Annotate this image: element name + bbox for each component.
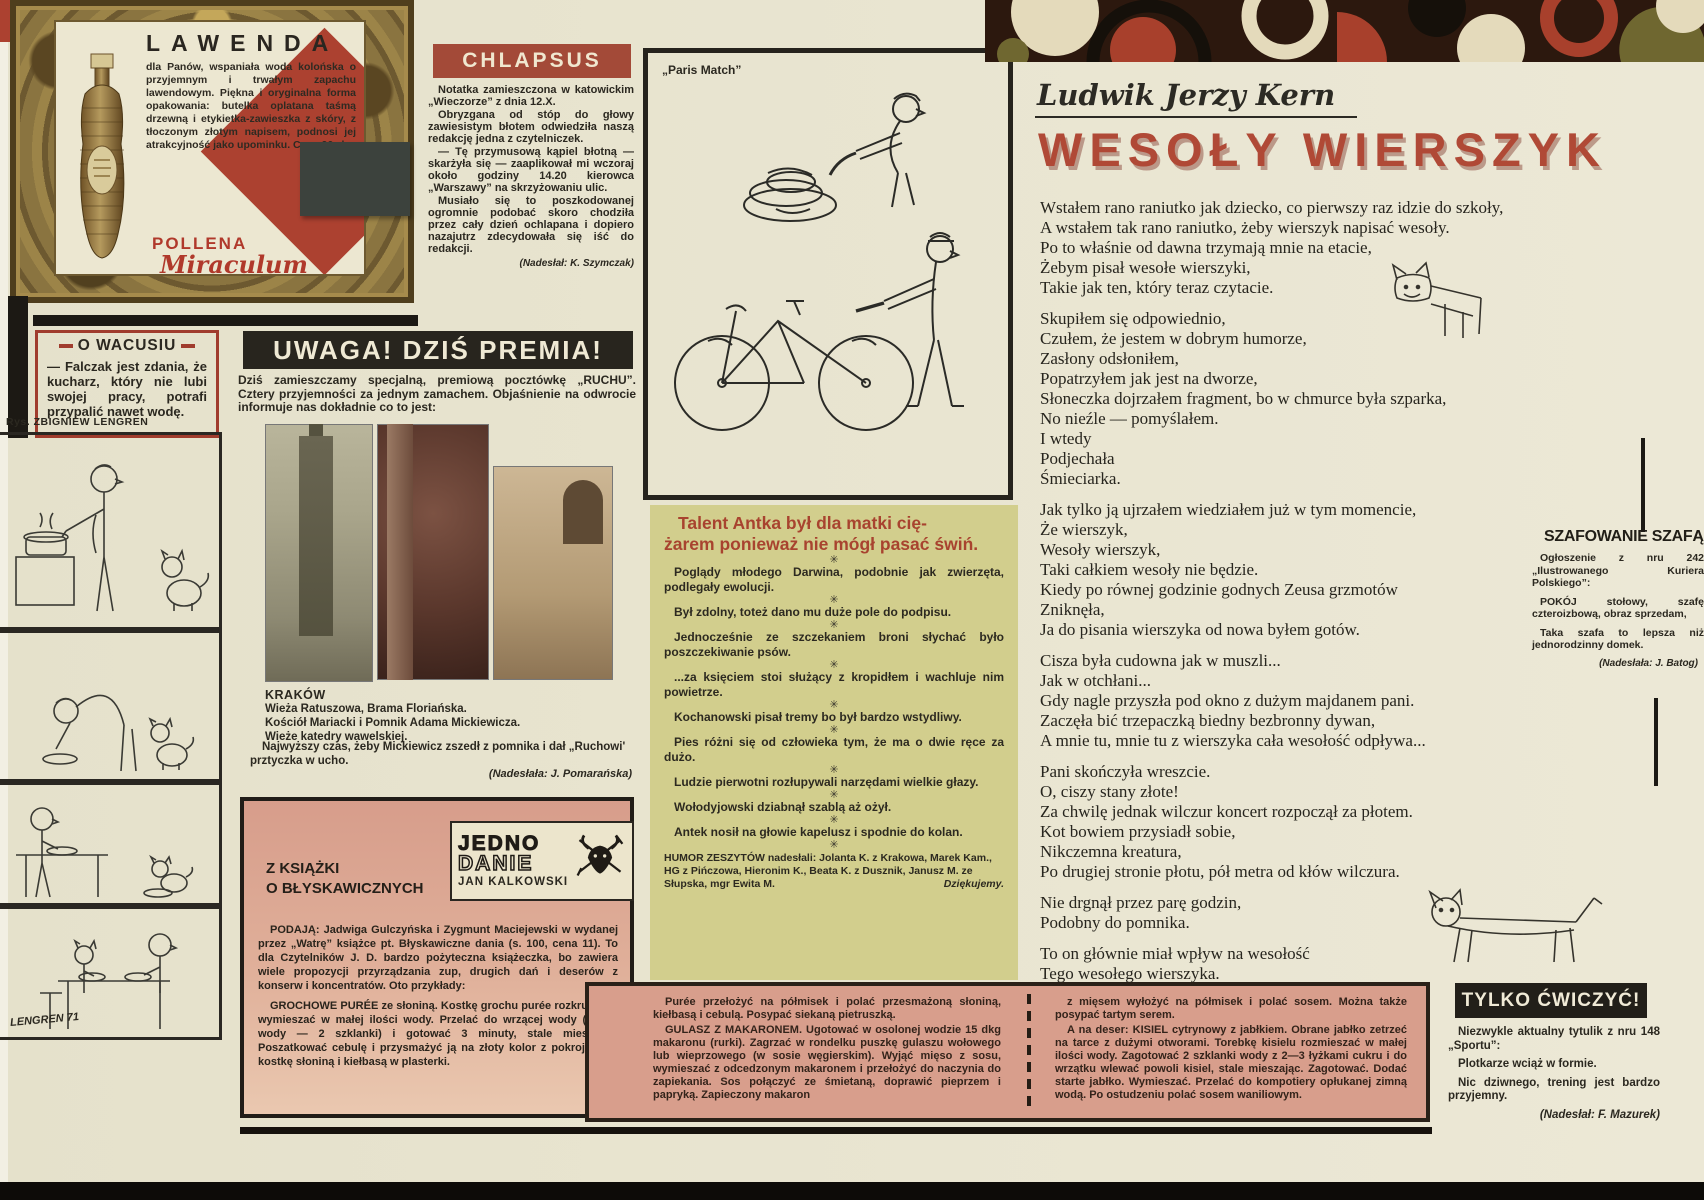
jedno-danie-box: JEDNO DANIE JAN KALKOWSKI Z KSIĄŻKI O BŁ… <box>240 797 634 1118</box>
tylko-credit: (Nadesłał: F. Mazurek) <box>1448 1109 1660 1123</box>
szafowanie-title: SZAFOWANIE SZAFĄ <box>1544 528 1704 546</box>
scan-bottom-bar <box>0 1182 1704 1200</box>
recipe-paragraph: Purée przełożyć na półmisek i polać prze… <box>653 996 1001 1022</box>
star-separator-icon: ✳ <box>664 765 1004 775</box>
tylko-p2: Plotkarze wciąż w formie. <box>1448 1058 1660 1072</box>
humor-item: Poglądy młodego Darwina, podobnie jak zw… <box>664 565 1004 595</box>
star-separator-icon: ✳ <box>664 555 1004 565</box>
star-separator-icon: ✳ <box>664 660 1004 670</box>
horizontal-black-bar <box>33 315 418 326</box>
chlapsus-paragraph: Notatka zamieszczona w katowickim „Wiecz… <box>428 84 634 108</box>
poem-stanza: Wstałem rano raniutko jak dziecko, co pi… <box>1040 198 1600 298</box>
humor-item: ...za księciem stoi służący z kropidłem … <box>664 670 1004 700</box>
tylko-p1: Niezwykle aktualny tytulik z nru 148 „Sp… <box>1448 1026 1660 1053</box>
talent-antka-box: Talent Antka był dla matki cię- żarem po… <box>650 505 1018 980</box>
recipe-paragraph: A na deser: KISIEL cytrynowy z jabłkiem.… <box>1055 1024 1407 1102</box>
paragraph-lead: PODAJĄ: <box>270 924 324 936</box>
comic-panel-2 <box>0 630 222 782</box>
humor-item: Antek nosił na głowie kapelusz i spodnie… <box>664 825 1004 840</box>
uwaga-banner: UWAGA! DZIŚ PREMIA! <box>243 331 633 369</box>
star-separator-icon: ✳ <box>664 815 1004 825</box>
poem-stanza: Pani skończyła wreszcie. O, ciszy stany … <box>1040 762 1600 882</box>
recipe-paragraph: z mięsem wyłożyć na półmisek i polać sos… <box>1055 996 1407 1022</box>
lawenda-body: dla Panów, wspaniała woda kolońska o prz… <box>146 61 356 152</box>
dog-doodle <box>1408 888 1608 966</box>
talent-antka-items: ✳ Poglądy młodego Darwina, podobnie jak … <box>664 555 1004 840</box>
cat-doodle <box>1385 260 1485 346</box>
krakow-photo-interior-light <box>493 466 613 680</box>
szafowanie-credit: (Nadesłała: J. Batog) <box>1532 658 1704 671</box>
recipe-text: z mięsem wyłożyć na półmisek i polać sos… <box>1055 996 1407 1021</box>
poem-body: Wstałem rano raniutko jak dziecko, co pi… <box>1040 198 1600 995</box>
star-separator-icon: ✳ <box>664 840 1004 850</box>
humor-item: Kochanowski pisał tremy bo był bardzo ws… <box>664 710 1004 725</box>
tylko-cwiczyc-header: TYLKO ĆWICZYĆ! <box>1455 983 1647 1018</box>
humor-item: Pies różni się od człowieka tym, że ma o… <box>664 735 1004 765</box>
recipe-paragraph: GULASZ Z MAKARONEM. Ugotować w osolonej … <box>653 1024 1001 1102</box>
vertical-rule-bottom <box>1654 698 1658 786</box>
poem-stanza: Skupiłem się odpowiednio, Czułem, że jes… <box>1040 309 1600 489</box>
jedno-danie-section-title: Z KSIĄŻKI O BŁYSKAWICZNYCH <box>266 859 424 899</box>
krakow-city-label: KRAKÓW <box>265 688 631 702</box>
poem-stanza: Jak tylko ją ujrzałem wiedziałem już w t… <box>1040 500 1600 640</box>
chlapsus-paragraphs: Notatka zamieszczona w katowickim „Wiecz… <box>428 84 634 255</box>
humor-item: Jednocześnie ze szczekaniem broni słycha… <box>664 630 1004 660</box>
lengren-caption: Rys. ZBIGNIEW LENGREN <box>6 416 148 428</box>
krakow-caption: KRAKÓW Wieża Ratuszowa, Brama Floriańska… <box>265 688 631 744</box>
star-separator-icon: ✳ <box>664 725 1004 735</box>
comic-panel-1-drawing <box>0 435 218 627</box>
talent-antka-title: Talent Antka był dla matki cię- żarem po… <box>664 513 1004 555</box>
poem-author: Ludwik Jerzy Kern <box>1035 78 1357 118</box>
recipe-left-column: Purée przełożyć na półmisek i polać prze… <box>653 996 1001 1104</box>
jedno-danie-paragraph: PODAJĄ: Jadwiga Gulczyńska i Zygmunt Mac… <box>258 923 618 993</box>
humor-item: Był zdolny, toteż dano mu duże pole do p… <box>664 605 1004 620</box>
lawenda-title: LAWENDA <box>146 30 356 57</box>
recipe-column-divider <box>1027 994 1031 1110</box>
krakow-credit: (Nadesłała: J. Pomarańska) <box>330 768 632 780</box>
uwaga-intro: Dziś zamieszczamy specjalną, premiową po… <box>238 374 636 415</box>
chlapsus-credit: (Nadesłał: K. Szymczak) <box>428 258 634 270</box>
paris-match-label: „Paris Match” <box>662 63 741 77</box>
bull-head-icon <box>572 829 628 881</box>
perfume-bottle-image <box>68 52 136 266</box>
recipe-right-column: z mięsem wyłożyć na półmisek i polać sos… <box>1055 996 1407 1104</box>
dark-tape-decoration <box>300 142 410 216</box>
jedno-danie-paragraph: GROCHOWE PURÉE ze słoniną. Kostkę grochu… <box>258 999 618 1069</box>
humor-footer: HUMOR ZESZYTÓW nadesłali: Jolanta K. z K… <box>664 852 1004 891</box>
recipe-text: Purée przełożyć na półmisek i polać prze… <box>653 996 1001 1021</box>
comic-panel-3 <box>0 782 222 906</box>
chlapsus-header: CHLAPSUS <box>433 44 631 78</box>
tylko-cwiczyc-body: Niezwykle aktualny tytulik z nru 148 „Sp… <box>1448 1026 1660 1127</box>
star-separator-icon: ✳ <box>664 700 1004 710</box>
magazine-page: LAWENDA dla Panów, wspaniała woda kolońs… <box>0 0 1704 1200</box>
jedno-danie-logo: JEDNO DANIE JAN KALKOWSKI <box>452 823 632 899</box>
star-separator-icon: ✳ <box>664 595 1004 605</box>
paragraph-lead: GROCHOWE PURÉE <box>270 1000 381 1012</box>
chlapsus-paragraph: Musiało się to poszkodowanej ogromnie po… <box>428 195 634 255</box>
tylko-p3: Nic dziwnego, trening jest bardzo przyje… <box>1448 1077 1660 1104</box>
jedno-danie-body: PODAJĄ: Jadwiga Gulczyńska i Zygmunt Mac… <box>258 923 618 1075</box>
o-wacusiu-text: — Falczak jest zdania, że kucharz, który… <box>47 359 207 419</box>
star-separator-icon: ✳ <box>664 790 1004 800</box>
krakow-photo-tower <box>265 424 373 682</box>
masthead-art <box>985 0 1704 62</box>
star-separator-icon: ✳ <box>664 620 1004 630</box>
vertical-rule-top <box>1641 438 1645 532</box>
poem-stanza: Cisza była cudowna jak w muszli... Jak w… <box>1040 651 1600 751</box>
paris-match-cartoon-box: „Paris Match” <box>643 48 1013 500</box>
krakow-photo-interior-dark <box>377 424 489 680</box>
humor-item: Ludzie pierwotni rozłupywali narzędami w… <box>664 775 1004 790</box>
poem-title: WESOŁY WIERSZYK <box>1038 122 1698 177</box>
chlapsus-paragraph: Obryzgana od stóp do głowy zawiesistym b… <box>428 109 634 145</box>
recipe-lead: GULASZ Z MAKARONEM. <box>665 1024 806 1036</box>
szafowanie-p1: Ogłoszenie z nru 242 „Ilustrowanego Kuri… <box>1532 552 1704 590</box>
recipe-box: Purée przełożyć na półmisek i polać prze… <box>585 982 1430 1122</box>
chlapsus-paragraph: — Tę przymusową kąpiel błotną — skarżyła… <box>428 146 634 194</box>
comic-panel-3-drawing <box>0 785 218 903</box>
krakow-caption-lines: Wieża Ratuszowa, Brama Floriańska. Kości… <box>265 702 631 744</box>
krakow-note: Najwyższy czas, żeby Mickiewicz zszedł z… <box>250 741 634 768</box>
paris-match-cartoon-drawing <box>648 53 1008 493</box>
szafowanie-p2: POKÓJ stołowy, szafę czteroizbową, obraz… <box>1532 596 1704 621</box>
comic-panel-2-drawing <box>0 633 218 779</box>
szafowanie-p3: Taka szafa to lepsza niż jednorodzinny d… <box>1532 627 1704 652</box>
o-wacusiu-title: O WACUSIU <box>47 337 207 355</box>
miraculum-brand: Miraculum <box>160 250 308 274</box>
humor-item: Wołodyjowski dziabnął szablą aż ożył. <box>664 800 1004 815</box>
szafowanie-column: SZAFOWANIE SZAFĄ Ogłoszenie z nru 242 „I… <box>1532 528 1704 670</box>
bottom-horizontal-rule <box>240 1127 1432 1134</box>
comic-panel-1 <box>0 432 222 630</box>
chlapsus-article: Notatka zamieszczona w katowickim „Wiecz… <box>428 84 634 270</box>
recipe-lead: A na deser: KISIEL cytrynowy z jabłkiem. <box>1067 1024 1291 1036</box>
